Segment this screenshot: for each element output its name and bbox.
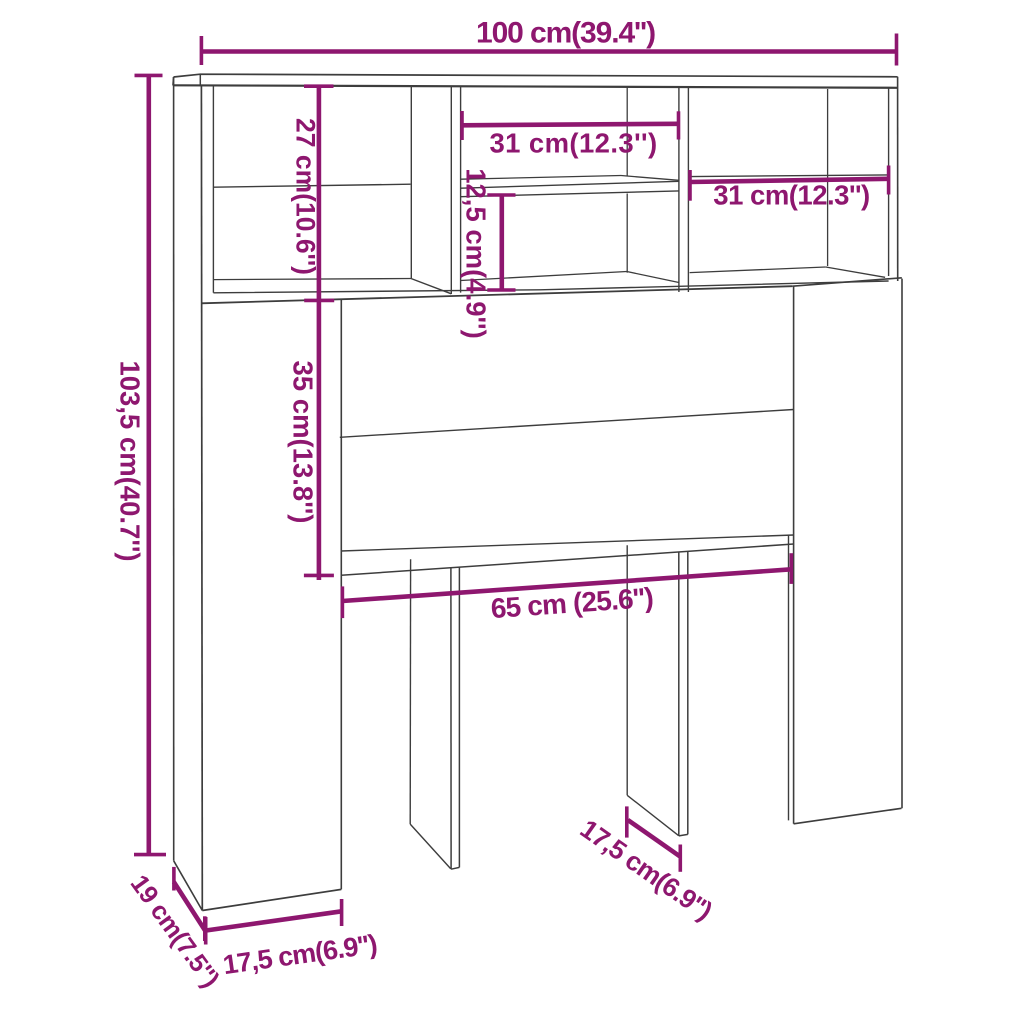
svg-text:12,5 cm(4.9''): 12,5 cm(4.9'') bbox=[461, 168, 492, 339]
svg-text:27 cm(10.6''): 27 cm(10.6'') bbox=[291, 118, 321, 275]
svg-text:103,5 cm(40.7''): 103,5 cm(40.7'') bbox=[115, 360, 146, 561]
svg-text:35 cm(13.8''): 35 cm(13.8'') bbox=[288, 361, 319, 524]
svg-text:100 cm(39.4''): 100 cm(39.4'') bbox=[476, 17, 655, 50]
svg-text:31 cm(12.3''): 31 cm(12.3'') bbox=[489, 128, 657, 159]
svg-text:31 cm(12.3''): 31 cm(12.3'') bbox=[713, 180, 869, 211]
